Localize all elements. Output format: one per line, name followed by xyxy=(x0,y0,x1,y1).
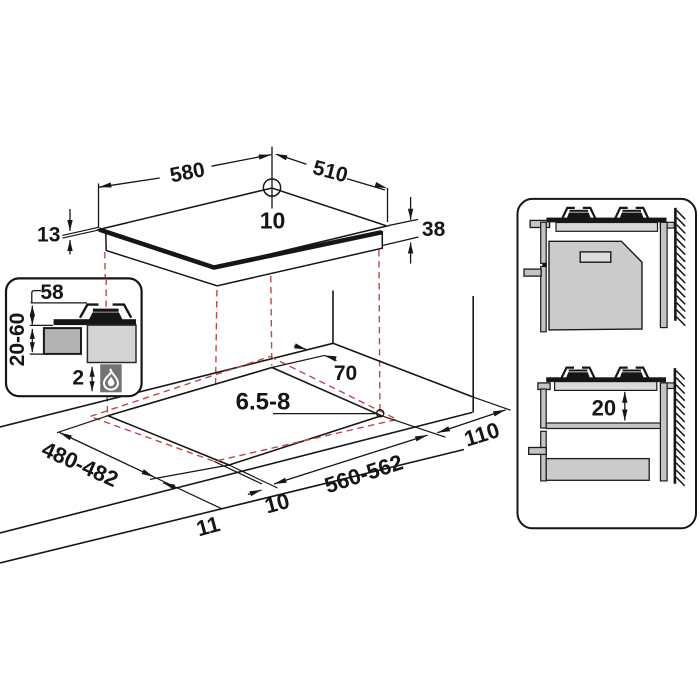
svg-text:10: 10 xyxy=(260,207,286,233)
svg-text:13: 13 xyxy=(37,224,60,247)
svg-text:70: 70 xyxy=(334,362,357,385)
svg-text:20: 20 xyxy=(592,396,616,421)
svg-text:58: 58 xyxy=(40,281,64,304)
svg-text:6.5-8: 6.5-8 xyxy=(236,389,291,416)
svg-text:20-60: 20-60 xyxy=(6,313,29,367)
svg-text:38: 38 xyxy=(422,218,446,241)
svg-text:2: 2 xyxy=(72,367,84,390)
